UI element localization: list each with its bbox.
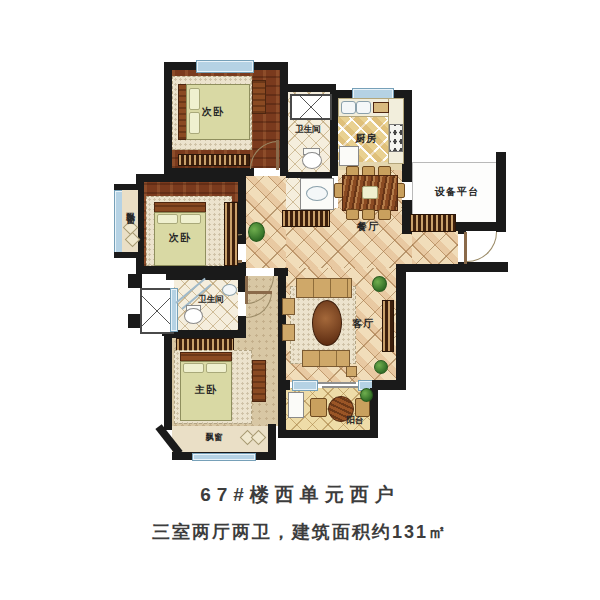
tv-cabinet xyxy=(382,300,394,352)
wall xyxy=(136,266,246,274)
caption-spec: 三室两厅两卫，建筑面积约131㎡ xyxy=(0,520,600,544)
pillow xyxy=(189,112,200,134)
floor-plan-page: 次卧 卫生间 厨房 设备平台 餐厅 飘窗 次卧 卫生间 客厅 主卧 飘窗 阳台 … xyxy=(0,0,600,600)
dining-floor-east xyxy=(412,230,458,268)
room-label-master: 主卧 xyxy=(195,383,217,397)
pillow xyxy=(180,214,201,224)
floor-plan: 次卧 卫生间 厨房 设备平台 餐厅 飘窗 次卧 卫生间 客厅 主卧 飘窗 阳台 xyxy=(0,0,600,600)
wall xyxy=(448,222,506,231)
sink xyxy=(222,284,237,296)
caption-unit: 67#楼西单元西户 xyxy=(0,482,600,508)
window-bay-bottom xyxy=(192,453,256,461)
wall xyxy=(166,330,246,338)
wall xyxy=(396,264,406,388)
entry-door-leaf xyxy=(464,232,467,264)
dining-chair xyxy=(362,209,375,220)
room-label-bedroom-mid: 次卧 xyxy=(169,231,191,245)
entry-door-arc xyxy=(467,232,497,262)
room-label-bay-left: 飘窗 xyxy=(124,205,137,209)
room-label-bay-bottom: 飘窗 xyxy=(206,432,223,444)
room-label-bedroom-top: 次卧 xyxy=(202,105,224,119)
wall xyxy=(496,152,506,232)
armchair xyxy=(282,298,295,315)
door-leaf xyxy=(276,140,279,170)
room-label-bath-mid: 卫生间 xyxy=(198,294,224,306)
sofa xyxy=(296,278,352,298)
wall xyxy=(268,424,276,460)
room-label-living: 客厅 xyxy=(352,317,374,331)
dining-chair xyxy=(346,209,359,220)
dresser xyxy=(252,360,266,402)
room-label-kitchen: 厨房 xyxy=(355,132,377,146)
wall xyxy=(396,264,466,272)
fridge xyxy=(339,146,359,166)
elevator-glass xyxy=(170,288,178,332)
balcony-slide-door xyxy=(318,382,356,384)
cutting-board xyxy=(373,102,389,113)
plant xyxy=(372,276,387,292)
wall xyxy=(280,62,288,176)
room-label-bath-top: 卫生间 xyxy=(295,124,321,136)
table-runner xyxy=(362,186,378,199)
kitchen-sink xyxy=(356,101,371,114)
sink xyxy=(306,186,328,201)
wall xyxy=(164,334,172,430)
dresser xyxy=(252,80,266,114)
elevator-shaft-icon xyxy=(140,288,174,334)
door-leaf xyxy=(246,291,272,294)
plant xyxy=(374,360,388,374)
toilet xyxy=(184,308,203,324)
balcony-slide-door xyxy=(322,386,360,388)
kitchen-sink xyxy=(341,101,356,114)
balcony-cabinet xyxy=(288,392,304,418)
window-bedroom-top xyxy=(196,60,254,73)
room-label-equipment: 设备平台 xyxy=(435,185,479,199)
wall xyxy=(288,84,336,92)
wall xyxy=(128,274,142,288)
pillow xyxy=(189,88,200,110)
toilet xyxy=(302,152,322,169)
window-living-left xyxy=(292,380,318,391)
wall xyxy=(274,268,288,276)
hall-threshold xyxy=(282,210,330,227)
plant xyxy=(248,222,265,242)
bath-top-floor xyxy=(286,178,300,210)
wall xyxy=(114,252,140,258)
coffee-table xyxy=(312,300,342,346)
pillow xyxy=(183,363,204,373)
room-label-dining: 餐厅 xyxy=(357,220,379,234)
pillow xyxy=(206,363,227,373)
sofa xyxy=(302,350,350,367)
entry-shoe-cabinet xyxy=(410,214,456,232)
wall xyxy=(136,174,246,182)
balcony-chair xyxy=(310,398,327,417)
stove xyxy=(389,124,403,152)
ottoman xyxy=(346,366,357,377)
flue-shaft-icon xyxy=(290,94,332,120)
pillow xyxy=(157,214,178,224)
wall xyxy=(164,62,172,176)
wall xyxy=(278,430,378,438)
armchair xyxy=(282,324,295,341)
plant xyxy=(360,388,373,402)
room-label-balcony: 阳台 xyxy=(347,415,364,427)
tv-cabinet xyxy=(178,154,250,166)
wardrobe xyxy=(224,202,238,266)
dining-chair xyxy=(378,209,391,220)
